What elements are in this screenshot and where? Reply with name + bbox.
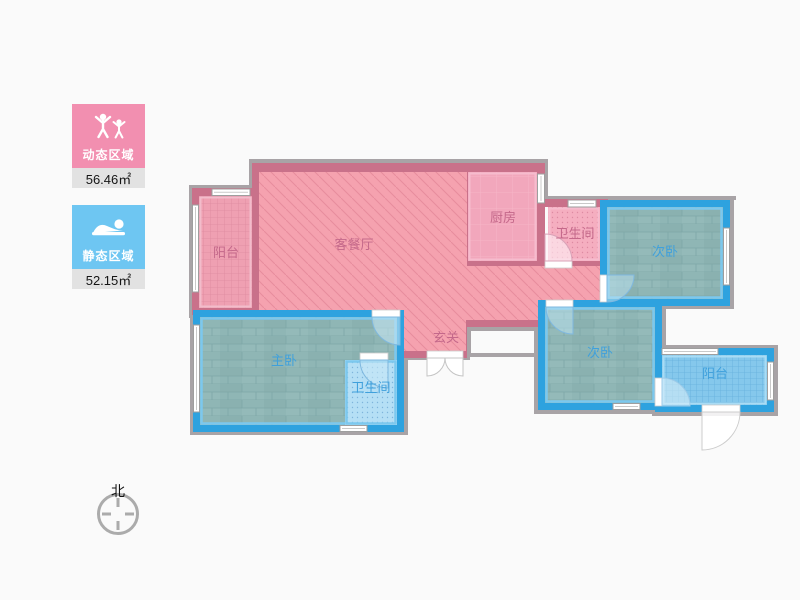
legend-dynamic-area: 动态区域 bbox=[72, 104, 145, 168]
label-entry: 玄关 bbox=[433, 330, 459, 345]
label-living-dining: 客餐厅 bbox=[334, 237, 373, 252]
legend-static-area: 静态区域 bbox=[72, 205, 145, 269]
label-bedroom-master: 主卧 bbox=[271, 353, 297, 368]
compass-north-label: 北 bbox=[111, 483, 125, 499]
label-bath-top: 卫生间 bbox=[555, 226, 594, 241]
legend-static-area-value: 52.15㎡ bbox=[72, 269, 145, 289]
people-arms-up-icon bbox=[92, 104, 126, 146]
entry-door-right-leaf bbox=[445, 358, 463, 376]
entry-door-left-leaf bbox=[427, 358, 445, 376]
label-balcony-right: 阳台 bbox=[702, 366, 728, 381]
floorplan: 阳台 客餐厅 厨房 卫生间 玄关 次卧 主卧 卫生间 次卧 阳台 北 bbox=[0, 0, 800, 600]
compass: 北 bbox=[99, 483, 138, 534]
label-bedroom-top: 次卧 bbox=[652, 244, 678, 259]
balcony-right-exit-door bbox=[702, 412, 740, 450]
label-bedroom-bottom: 次卧 bbox=[587, 345, 613, 360]
sleeping-person-icon bbox=[90, 205, 128, 247]
compass-crosshair bbox=[102, 498, 134, 530]
label-balcony-left: 阳台 bbox=[213, 245, 239, 260]
legend-dynamic-label: 动态区域 bbox=[82, 146, 134, 163]
legend-dynamic-area-value: 56.46㎡ bbox=[72, 168, 145, 188]
label-bath-bottom: 卫生间 bbox=[351, 380, 390, 395]
legend-static-label: 静态区域 bbox=[82, 247, 134, 264]
label-kitchen: 厨房 bbox=[490, 210, 516, 225]
